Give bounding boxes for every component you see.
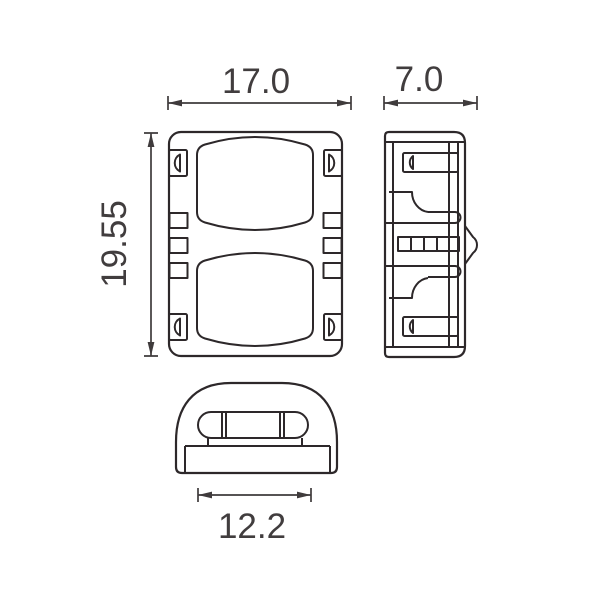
corner-clip-bottom-right bbox=[324, 314, 342, 340]
dim-label-front-width: 17.0 bbox=[222, 62, 290, 101]
front-body-outline bbox=[169, 132, 342, 356]
side-step-upper bbox=[389, 192, 428, 212]
side-ribs-left bbox=[170, 213, 188, 278]
dimension-bottom-width: 12.2 bbox=[198, 488, 311, 546]
dim-label-front-height: 19.55 bbox=[95, 200, 134, 288]
bottom-dome-outline bbox=[176, 383, 337, 473]
dimension-side-width: 7.0 bbox=[384, 60, 477, 110]
latch-bump bbox=[465, 226, 477, 264]
bottom-base-block bbox=[185, 446, 330, 473]
drawing-canvas: 17.0 7.0 19.55 12.2 bbox=[0, 0, 600, 600]
side-view bbox=[385, 132, 477, 357]
side-ribs-right bbox=[324, 213, 342, 278]
dim-arrow-top bbox=[148, 133, 155, 147]
corner-clip-top-right bbox=[324, 150, 342, 176]
technical-drawing: 17.0 7.0 19.55 12.2 bbox=[0, 0, 600, 600]
corner-clip-top-left bbox=[169, 150, 187, 176]
corner-clip-bottom-left bbox=[169, 314, 187, 340]
dim-arrow-right bbox=[297, 492, 311, 499]
front-view bbox=[169, 132, 342, 356]
side-step-lower bbox=[389, 278, 428, 298]
dim-arrow-left bbox=[384, 100, 398, 107]
dim-label-bottom-width: 12.2 bbox=[218, 507, 286, 546]
dim-arrow-right bbox=[463, 100, 477, 107]
dimension-front-width: 17.0 bbox=[168, 62, 351, 110]
dim-arrow-bottom bbox=[148, 342, 155, 356]
dim-arrow-left bbox=[168, 100, 182, 107]
front-lower-pad bbox=[197, 253, 313, 346]
strip-slot bbox=[198, 412, 308, 438]
strip-slot-dividers bbox=[222, 413, 284, 437]
dim-arrow-right bbox=[337, 100, 351, 107]
slot-lip bbox=[208, 438, 302, 446]
dimension-front-height: 19.55 bbox=[95, 133, 158, 356]
front-upper-pad bbox=[197, 137, 313, 230]
dim-arrow-left bbox=[198, 492, 212, 499]
bottom-view bbox=[176, 383, 337, 473]
dim-label-side-width: 7.0 bbox=[395, 60, 444, 99]
